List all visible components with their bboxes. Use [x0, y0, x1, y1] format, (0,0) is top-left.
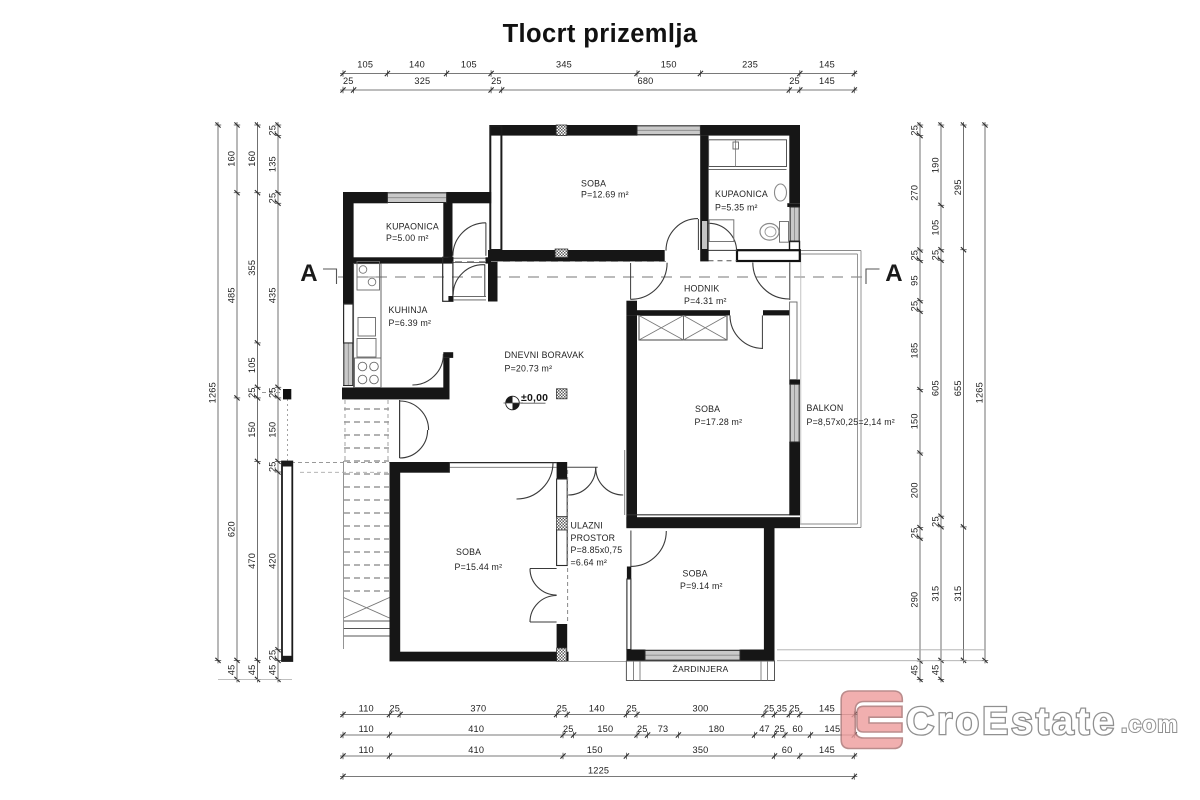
- svg-text:105: 105: [930, 220, 940, 236]
- svg-text:110: 110: [359, 704, 374, 714]
- svg-text:DNEVNI BORAVAK: DNEVNI BORAVAK: [505, 350, 585, 360]
- svg-text:25: 25: [930, 516, 940, 527]
- svg-text:315: 315: [953, 586, 963, 602]
- svg-text:180: 180: [709, 724, 725, 734]
- svg-text:25: 25: [267, 461, 277, 472]
- svg-text:200: 200: [909, 482, 919, 498]
- svg-text:150: 150: [661, 60, 677, 70]
- svg-text:25: 25: [909, 250, 919, 261]
- svg-text:25: 25: [909, 528, 919, 539]
- svg-text:350: 350: [693, 745, 709, 755]
- svg-text:605: 605: [930, 380, 940, 396]
- svg-text:BALKON: BALKON: [807, 403, 844, 413]
- svg-text:135: 135: [267, 156, 277, 172]
- svg-text:P=4.31 m²: P=4.31 m²: [684, 296, 727, 306]
- svg-text:25: 25: [637, 724, 648, 734]
- svg-text:45: 45: [226, 665, 236, 676]
- svg-text:325: 325: [414, 76, 430, 86]
- svg-text:185: 185: [909, 343, 919, 359]
- svg-text:45: 45: [267, 665, 277, 676]
- svg-text:160: 160: [226, 151, 236, 167]
- svg-text:A: A: [300, 260, 318, 287]
- svg-text:145: 145: [819, 60, 835, 70]
- svg-text:25: 25: [557, 704, 568, 714]
- svg-text:1265: 1265: [207, 382, 217, 403]
- svg-text:25: 25: [267, 650, 277, 661]
- svg-text:45: 45: [909, 665, 919, 676]
- svg-text:110: 110: [359, 745, 374, 755]
- svg-text:P=5.00 m²: P=5.00 m²: [386, 233, 429, 243]
- svg-text:P=9.14 m²: P=9.14 m²: [680, 581, 723, 591]
- svg-text:73: 73: [658, 724, 669, 734]
- svg-text:150: 150: [597, 724, 613, 734]
- svg-text:SOBA: SOBA: [456, 547, 481, 557]
- svg-text:SOBA: SOBA: [581, 179, 606, 189]
- svg-text:45: 45: [247, 665, 257, 676]
- svg-text:47: 47: [759, 724, 770, 734]
- svg-text:25: 25: [789, 76, 800, 86]
- svg-text:SOBA: SOBA: [695, 404, 720, 414]
- svg-text:655: 655: [953, 380, 963, 396]
- svg-text:25: 25: [909, 301, 919, 312]
- svg-text:±0,00: ±0,00: [521, 392, 548, 404]
- svg-text:110: 110: [359, 724, 374, 734]
- svg-text:P=17.28 m²: P=17.28 m²: [695, 417, 743, 427]
- svg-text:190: 190: [930, 157, 940, 173]
- svg-text:270: 270: [909, 185, 919, 201]
- svg-text:145: 145: [819, 76, 835, 86]
- svg-text:25: 25: [491, 76, 502, 86]
- svg-text:150: 150: [909, 413, 919, 429]
- svg-text:345: 345: [556, 60, 572, 70]
- svg-text:25: 25: [343, 76, 354, 86]
- svg-text:=6.64 m²: =6.64 m²: [571, 558, 608, 568]
- svg-text:420: 420: [267, 553, 277, 569]
- svg-text:95: 95: [909, 275, 919, 286]
- svg-text:P=15.44 m²: P=15.44 m²: [455, 562, 503, 572]
- svg-text:1225: 1225: [588, 766, 609, 776]
- svg-text:140: 140: [589, 704, 605, 714]
- svg-text:315: 315: [930, 586, 940, 602]
- svg-text:680: 680: [638, 76, 654, 86]
- svg-text:60: 60: [792, 724, 803, 734]
- svg-text:25: 25: [626, 704, 637, 714]
- svg-text:25: 25: [909, 125, 919, 136]
- svg-text:P=5.35 m²: P=5.35 m²: [715, 203, 758, 213]
- svg-text:355: 355: [247, 260, 257, 276]
- svg-text:ULAZNI: ULAZNI: [571, 521, 603, 531]
- svg-text:150: 150: [587, 745, 603, 755]
- svg-text:105: 105: [247, 357, 257, 373]
- svg-text:290: 290: [909, 592, 919, 608]
- svg-text:25: 25: [247, 387, 257, 398]
- svg-text:HODNIK: HODNIK: [684, 284, 719, 294]
- svg-text:KUPAONICA: KUPAONICA: [386, 222, 439, 232]
- svg-text:145: 145: [824, 724, 840, 734]
- svg-text:235: 235: [742, 60, 758, 70]
- svg-text:25: 25: [563, 724, 574, 734]
- svg-text:P=12.69 m²: P=12.69 m²: [581, 190, 629, 200]
- svg-text:150: 150: [247, 422, 257, 438]
- svg-text:295: 295: [953, 179, 963, 195]
- svg-text:KUHINJA: KUHINJA: [389, 305, 428, 315]
- svg-text:140: 140: [409, 60, 425, 70]
- svg-text:105: 105: [461, 60, 477, 70]
- svg-text:105: 105: [357, 60, 373, 70]
- svg-text:A: A: [885, 260, 903, 287]
- svg-text:370: 370: [470, 704, 486, 714]
- svg-text:150: 150: [267, 422, 277, 438]
- svg-text:KUPAONICA: KUPAONICA: [715, 189, 768, 199]
- svg-text:410: 410: [468, 724, 484, 734]
- svg-text:485: 485: [226, 287, 236, 303]
- svg-text:25: 25: [774, 724, 785, 734]
- svg-text:P=6.39 m²: P=6.39 m²: [389, 318, 432, 328]
- svg-text:25: 25: [267, 193, 277, 204]
- svg-text:300: 300: [693, 704, 709, 714]
- svg-text:145: 145: [819, 704, 835, 714]
- svg-text:145: 145: [819, 745, 835, 755]
- svg-text:P=20.73 m²: P=20.73 m²: [505, 364, 553, 374]
- svg-text:ŽARDINJERA: ŽARDINJERA: [673, 664, 729, 674]
- svg-text:25: 25: [389, 704, 400, 714]
- svg-text:435: 435: [267, 287, 277, 303]
- svg-text:P=8,57x0,25=2,14 m²: P=8,57x0,25=2,14 m²: [807, 417, 895, 427]
- svg-text:45: 45: [930, 665, 940, 676]
- svg-text:PROSTOR: PROSTOR: [571, 533, 616, 543]
- svg-text:35: 35: [777, 704, 788, 714]
- svg-text:410: 410: [468, 745, 484, 755]
- svg-text:25: 25: [764, 704, 775, 714]
- svg-text:1265: 1265: [974, 382, 984, 403]
- svg-text:25: 25: [789, 704, 800, 714]
- svg-text:.com: .com: [1121, 711, 1179, 737]
- svg-text:470: 470: [247, 553, 257, 569]
- svg-text:25: 25: [930, 250, 940, 261]
- svg-text:25: 25: [267, 125, 277, 136]
- svg-text:620: 620: [226, 521, 236, 537]
- svg-text:SOBA: SOBA: [683, 569, 708, 579]
- svg-text:P=8.85x0,75: P=8.85x0,75: [571, 545, 623, 555]
- svg-text:Tlocrt prizemlja: Tlocrt prizemlja: [503, 20, 698, 48]
- svg-text:60: 60: [782, 745, 793, 755]
- svg-text:CroEstate: CroEstate: [906, 700, 1117, 743]
- svg-text:160: 160: [247, 151, 257, 167]
